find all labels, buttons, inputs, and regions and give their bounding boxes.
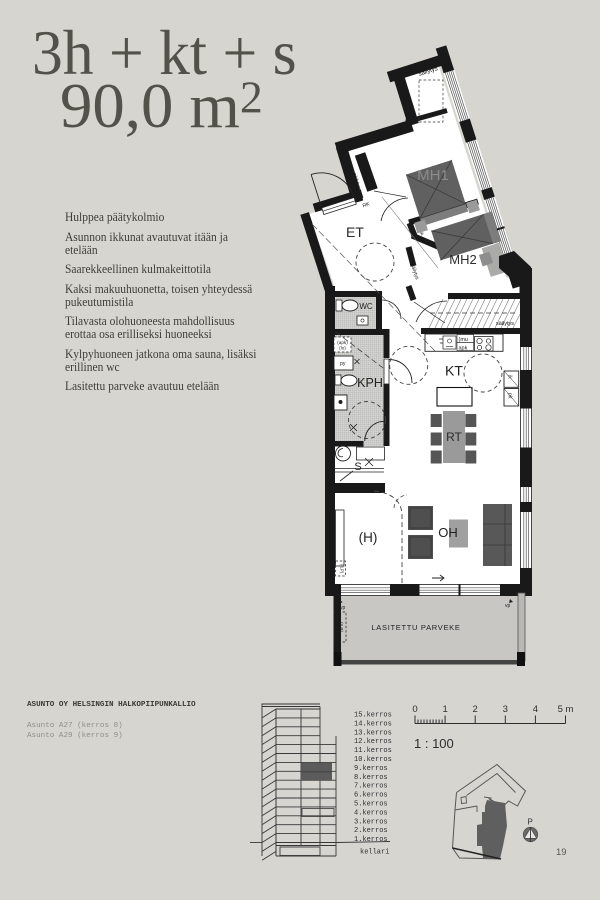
svg-text:15.kerros: 15.kerros bbox=[354, 712, 392, 720]
svg-text:12.kerros: 12.kerros bbox=[354, 738, 392, 746]
svg-text:apk: apk bbox=[459, 346, 468, 352]
svg-text:MH2: MH2 bbox=[449, 252, 476, 267]
svg-text:säilytys: säilytys bbox=[496, 321, 514, 327]
svg-text:(ILP): (ILP) bbox=[339, 622, 344, 632]
svg-text:14.kerros: 14.kerros bbox=[354, 720, 392, 728]
svg-text:6.kerros: 6.kerros bbox=[354, 792, 388, 800]
svg-text:(lo): (lo) bbox=[339, 346, 346, 351]
svg-text:WC: WC bbox=[359, 302, 373, 311]
svg-text:10.kerros: 10.kerros bbox=[354, 756, 392, 764]
svg-text:1.kerros: 1.kerros bbox=[354, 836, 388, 844]
svg-text:LASITETTU PARVEKE: LASITETTU PARVEKE bbox=[371, 623, 460, 632]
svg-text:3.kerros: 3.kerros bbox=[354, 818, 388, 826]
svg-text:vp: vp bbox=[340, 605, 346, 611]
svg-text:RT: RT bbox=[446, 430, 462, 444]
svg-text:pk: pk bbox=[507, 393, 513, 399]
svg-text:S: S bbox=[354, 461, 361, 473]
svg-text:1: 1 bbox=[442, 704, 447, 715]
svg-text:OH: OH bbox=[438, 525, 458, 540]
svg-text:KT: KT bbox=[445, 363, 463, 379]
svg-text:9.kerros: 9.kerros bbox=[354, 765, 388, 773]
svg-text:4.kerros: 4.kerros bbox=[354, 809, 388, 817]
svg-text:2: 2 bbox=[473, 704, 478, 715]
svg-text:kellari: kellari bbox=[360, 849, 389, 857]
svg-text:5 m: 5 m bbox=[558, 704, 574, 715]
svg-text:py: py bbox=[340, 361, 346, 367]
svg-text:11.kerros: 11.kerros bbox=[354, 747, 392, 755]
svg-text:(mu: (mu bbox=[459, 337, 468, 343]
svg-text:P: P bbox=[528, 818, 533, 827]
svg-text:vp: vp bbox=[505, 603, 511, 609]
svg-text:MH1: MH1 bbox=[417, 167, 449, 184]
svg-text:0: 0 bbox=[412, 704, 417, 715]
svg-text:13.kerros: 13.kerros bbox=[354, 729, 392, 737]
svg-text:jk: jk bbox=[507, 374, 513, 379]
svg-text:7.kerros: 7.kerros bbox=[354, 783, 388, 791]
svg-text:2.kerros: 2.kerros bbox=[354, 827, 388, 835]
svg-text:(apk): (apk) bbox=[337, 340, 348, 345]
svg-text:1 : 100: 1 : 100 bbox=[414, 736, 454, 751]
svg-text:(ILP): (ILP) bbox=[340, 564, 345, 574]
svg-text:3: 3 bbox=[503, 704, 508, 715]
svg-text:4: 4 bbox=[533, 704, 538, 715]
svg-text:ET: ET bbox=[346, 224, 364, 240]
svg-text:KPH: KPH bbox=[357, 376, 383, 390]
svg-text:(H): (H) bbox=[359, 530, 378, 545]
svg-text:8.kerros: 8.kerros bbox=[354, 774, 388, 782]
svg-text:5.kerros: 5.kerros bbox=[354, 801, 388, 809]
